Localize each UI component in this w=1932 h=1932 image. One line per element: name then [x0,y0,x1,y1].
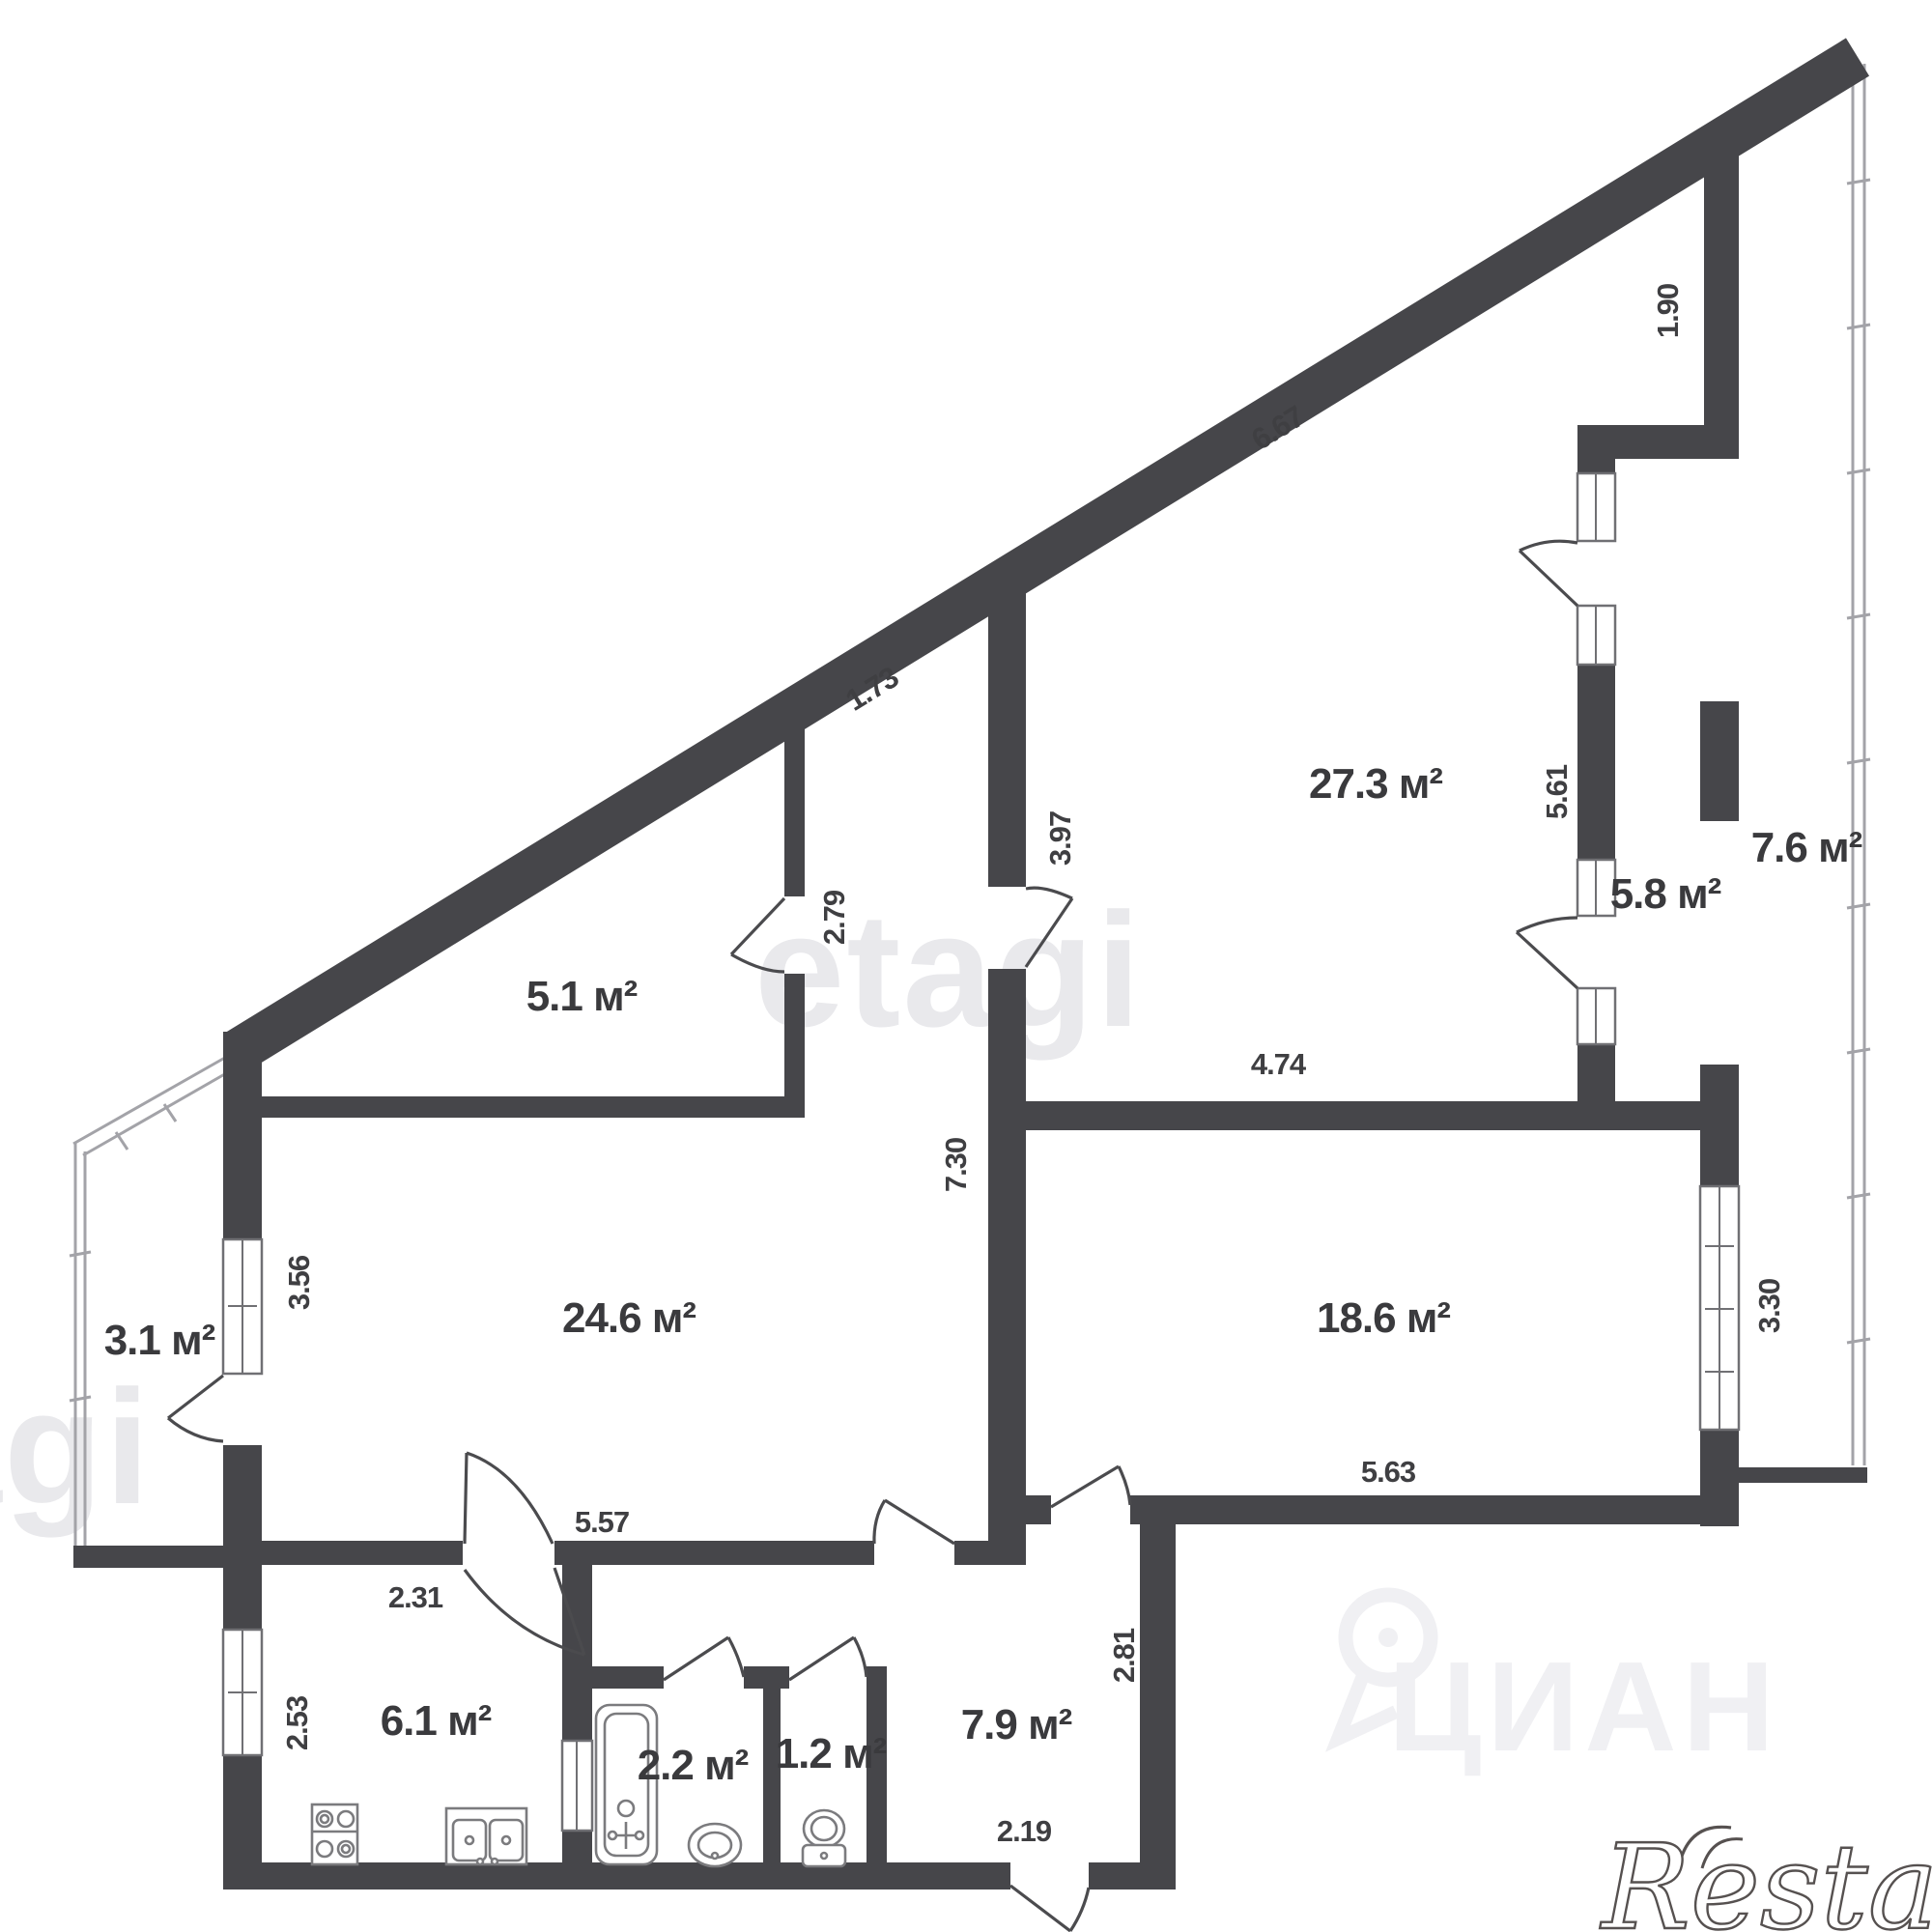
dim-5-57: 5.57 [575,1505,629,1539]
wall-a-bottom [784,974,805,1118]
glazing-left-diag-outer [73,1055,230,1144]
wall-bath-top-b [744,1666,789,1689]
wall-loggia-c [1577,1044,1615,1130]
watermark-cian: ЦИАН [1338,1595,1780,1777]
floorplan-canvas: etagi etagi ЦИАН [0,0,1932,1932]
wall-h4-b [554,1541,874,1565]
room-label-5-8: 5.8 м² [1610,870,1721,918]
dim-3-30: 3.30 [1752,1279,1786,1333]
wall-h3-b [1130,1495,1739,1524]
kitchen-sink-icon [446,1808,526,1864]
door-loggia-top [1520,541,1577,606]
room-label-7-6: 7.6 м² [1751,824,1862,871]
watermark-cian-text: ЦИАН [1388,1635,1780,1777]
floorplan-page: etagi etagi ЦИАН [0,0,1932,1932]
door-living-hall [874,1500,954,1544]
wall-hall-right [1140,1495,1176,1889]
wall-h4-a [223,1541,463,1565]
door-loggia-bottom [1517,918,1577,988]
room-label-5-1: 5.1 м² [526,973,638,1020]
room-label-7-9: 7.9 м² [961,1701,1072,1748]
room-label-18-6: 18.6 м² [1317,1294,1450,1342]
watermark-restate-text: Restate [1600,1819,1932,1932]
watermark-etagi: etagi [754,879,1143,1061]
wall-bottom-left [223,1862,1010,1889]
window-layer [223,473,1739,1831]
wall-balcony-left-bottom [73,1546,223,1568]
bath-sink-icon [689,1824,741,1866]
wall-190 [1704,143,1739,459]
dim-2-53: 2.53 [280,1695,314,1750]
wall-b-bottom [988,969,1026,1565]
door-balcony-left [168,1376,223,1441]
glazing-left-diag-inner [83,1068,235,1155]
dim-2-81: 2.81 [1107,1628,1141,1683]
wall-h1 [223,1096,805,1118]
toilet-icon [803,1810,845,1866]
wall-kitchen-right-bot [562,1831,592,1864]
door-bathroom [664,1637,744,1680]
glazing-right-ticks [1847,180,1870,1343]
wall-loggia-b [1577,665,1615,860]
dim-2-31: 2.31 [388,1580,443,1614]
wall-loggia-top [1577,425,1739,459]
door-bedroom [1051,1466,1130,1507]
room-label-1-2: 1.2 м² [776,1730,887,1777]
wall-18-right-bot [1700,1430,1739,1526]
room-label-6-1: 6.1 м² [381,1697,492,1745]
wall-left-1 [223,1032,262,1239]
dim-1-90: 1.90 [1651,284,1685,338]
room-label-24-6: 24.6 м² [562,1294,696,1342]
wall-a-top [784,712,805,896]
door-kitchen-swing [465,1453,553,1544]
wall-b-top [988,580,1026,887]
wall-18-right-top [1700,1065,1739,1186]
room-label-3-1: 3.1 м² [104,1317,215,1364]
dim-3-56: 3.56 [282,1255,316,1310]
wall-balcony-close [1739,1467,1867,1483]
wall-left-2 [223,1445,262,1630]
watermark-restate: Restate [1600,1819,1932,1932]
dim-4-74: 4.74 [1251,1047,1307,1081]
dim-2-79: 2.79 [817,890,851,945]
door-wc [789,1637,867,1680]
room-label-2-2: 2.2 м² [638,1742,749,1789]
wall-pillar [1700,701,1739,821]
room-label-27-3: 27.3 м² [1309,760,1442,808]
dim-3-97: 3.97 [1043,811,1077,866]
wall-h3-a [1026,1495,1051,1524]
dim-2-19: 2.19 [997,1814,1052,1848]
stove-icon [312,1804,357,1864]
wall-h2 [1026,1101,1739,1130]
dim-5-61: 5.61 [1540,764,1574,819]
dim-5-63: 5.63 [1361,1455,1416,1489]
dim-7-30: 7.30 [939,1138,973,1192]
door-entrance [1010,1886,1089,1931]
